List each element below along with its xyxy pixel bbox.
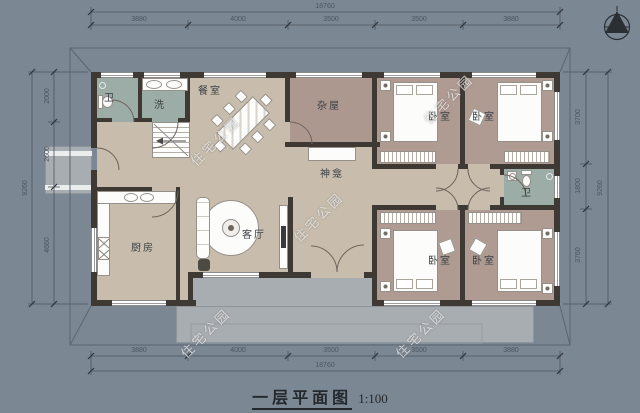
entry-recess-fill <box>193 278 372 306</box>
dim-right-seg-3: 3760 <box>575 233 583 277</box>
nightstand-icon <box>542 80 553 91</box>
title-scale: 1:100 <box>358 391 388 406</box>
room-label-bedroom-ne-right: 卧室 <box>469 112 499 124</box>
window <box>554 92 560 140</box>
sink-icon <box>124 193 138 202</box>
side-step-line <box>45 151 92 156</box>
room-label-laundry: 洗 <box>150 100 170 112</box>
dim-right-seg-2: 1800 <box>575 164 583 208</box>
nightstand-icon <box>542 131 553 142</box>
pillow-icon <box>396 279 413 289</box>
dim-bottom-seg-3: 3500 <box>311 347 351 355</box>
stove-icon <box>98 237 110 260</box>
wardrobe <box>504 151 550 163</box>
window <box>554 232 560 286</box>
shrine-table <box>308 147 356 161</box>
room-label-living: 客厅 <box>234 230 274 242</box>
pillow-icon <box>520 85 537 95</box>
nightstand-icon <box>380 80 391 91</box>
north-compass-icon <box>604 6 630 40</box>
plant-icon <box>198 259 210 271</box>
pillow-icon <box>416 85 433 95</box>
dim-top-seg-3: 3500 <box>311 16 351 24</box>
wall <box>372 272 377 306</box>
dim-top-seg-2: 4000 <box>218 16 258 24</box>
sofa-left <box>196 197 210 259</box>
sink-basin-icon <box>509 173 516 180</box>
window <box>296 72 362 78</box>
room-label-dining: 餐室 <box>190 86 230 98</box>
dim-top-total: 18760 <box>305 3 345 11</box>
pillow-icon <box>520 279 537 289</box>
wall <box>91 72 97 148</box>
room-label-shrine: 神龛 <box>312 169 352 181</box>
dim-bottom-seg-2: 4000 <box>218 347 258 355</box>
dim-left-total: 9260 <box>22 166 30 210</box>
nightstand-icon <box>542 228 553 239</box>
window <box>112 300 166 306</box>
wall <box>458 164 468 169</box>
nightstand-icon <box>542 283 553 294</box>
wall <box>176 187 180 300</box>
wall <box>460 210 465 300</box>
drawing-title: 一层平面图1:100 <box>0 384 640 408</box>
wardrobe <box>380 212 436 224</box>
wall <box>91 118 112 122</box>
side-step-line <box>45 185 92 190</box>
staircase <box>152 122 190 158</box>
window <box>384 300 440 306</box>
wall <box>372 164 436 169</box>
wall <box>372 72 377 169</box>
dim-top-seg-1: 3880 <box>119 16 159 24</box>
dim-left-seg-2: 2600 <box>44 132 52 176</box>
dim-bottom-seg-5: 3880 <box>491 347 531 355</box>
room-label-bath-right: 卫 <box>517 188 537 200</box>
sink-icon <box>140 193 154 202</box>
sink-icon <box>166 80 182 89</box>
window <box>203 272 259 278</box>
wall <box>500 169 504 175</box>
wall <box>372 205 436 210</box>
dim-right-seg-1: 3700 <box>575 95 583 139</box>
room-label-bedroom-se-right: 卧室 <box>469 256 499 268</box>
window <box>384 72 440 78</box>
dim-left-seg-3: 4660 <box>44 223 52 267</box>
dim-left-seg-1: 2000 <box>44 74 52 118</box>
pillow-icon <box>500 279 517 289</box>
pillow-icon <box>396 85 413 95</box>
window <box>554 176 560 198</box>
wall <box>372 210 377 272</box>
window <box>472 300 536 306</box>
wall <box>134 118 152 122</box>
room-label-kitchen: 厨房 <box>123 243 163 255</box>
nightstand-icon <box>380 281 391 292</box>
pillow-icon <box>500 85 517 95</box>
dim-top-seg-5: 3880 <box>491 16 531 24</box>
wardrobe <box>468 212 522 224</box>
room-label-bath-top-left: 卫 <box>100 93 120 105</box>
vent-icon <box>99 82 106 89</box>
wall <box>490 205 560 210</box>
wall <box>500 197 504 205</box>
dim-bottom-total: 18760 <box>305 362 345 370</box>
wall <box>188 272 193 306</box>
toilet-icon <box>522 175 531 187</box>
title-text: 一层平面图 <box>252 390 352 410</box>
pillow-icon <box>416 279 433 289</box>
nightstand-icon <box>380 131 391 142</box>
dim-top-seg-4: 3500 <box>399 16 439 24</box>
wardrobe <box>380 151 436 163</box>
floor-plan-canvas: 卫 洗 餐室 杂屋 神龛 卧室 卧室 卫 厨房 客厅 卧室 卧室 18760 3… <box>0 0 640 413</box>
room-label-storage: 杂屋 <box>309 101 349 113</box>
room-label-bedroom-se-left: 卧室 <box>425 256 455 268</box>
drain-icon <box>546 173 553 180</box>
dim-right-total: 9260 <box>597 166 605 210</box>
nightstand-icon <box>380 228 391 239</box>
dim-bottom-seg-1: 3880 <box>119 347 159 355</box>
window <box>101 72 133 78</box>
sink-icon <box>146 80 162 89</box>
window <box>204 72 266 78</box>
